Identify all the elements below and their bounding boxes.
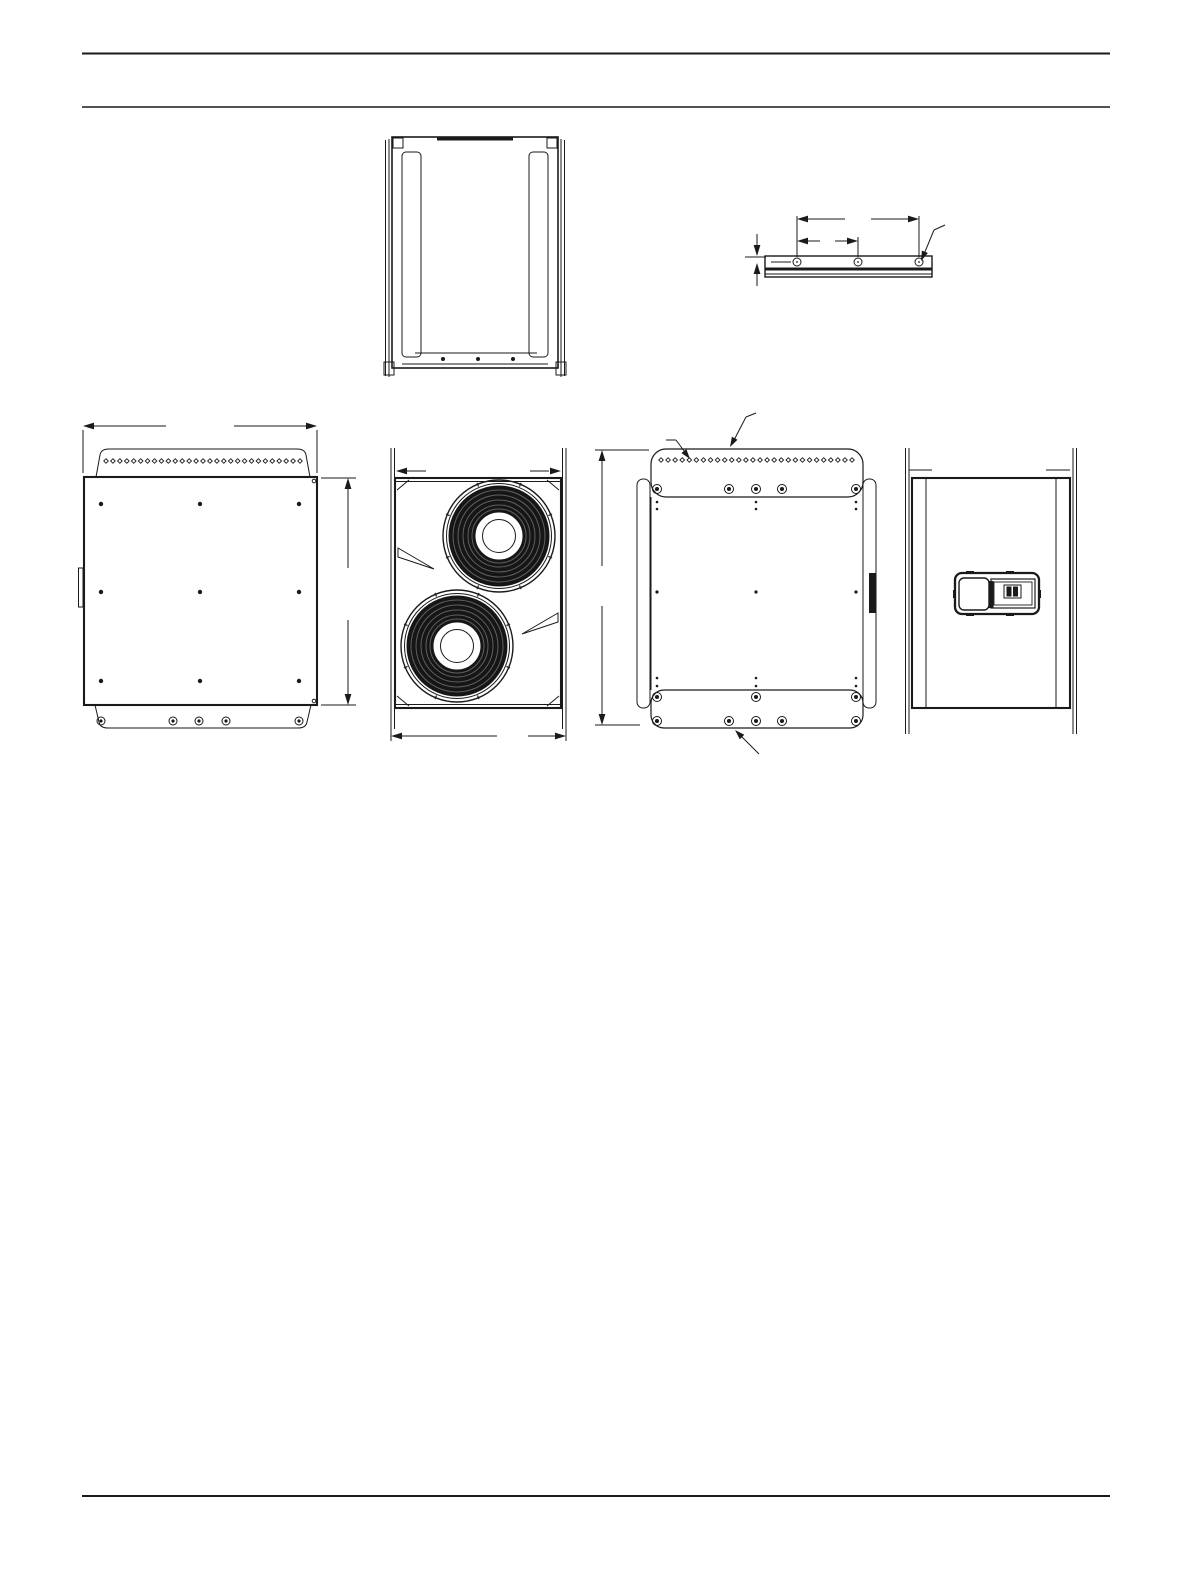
handle-tab: [1006, 613, 1014, 616]
dimension-depth: [83, 423, 317, 473]
bottom-strip-screws-row1: [653, 693, 861, 702]
arrowhead: [847, 238, 858, 245]
dimension-height: [595, 450, 649, 725]
handle-tab: [966, 613, 974, 616]
handle-tab: [1038, 590, 1041, 598]
corner-rivet-bottom: [312, 699, 316, 703]
arrowhead: [797, 238, 808, 245]
dimension-width-bottom: [391, 713, 566, 741]
dimension-rail-width-top: [396, 468, 561, 475]
corner-tab-left: [393, 138, 403, 148]
pilot-dots-upper: [656, 501, 858, 511]
recessed-handle: [953, 571, 1041, 616]
bolt-dot-grid: [99, 502, 301, 683]
handle-edge-profile: [869, 573, 876, 613]
arrowhead: [345, 478, 352, 489]
perforation-diamonds: [659, 458, 855, 463]
pilot-dots-lower: [656, 677, 858, 688]
leader-rail-hole: [921, 225, 945, 261]
view-front: [391, 448, 566, 741]
woofer-drivers: [401, 480, 555, 702]
side-wall-right: [529, 152, 548, 357]
arrowhead: [550, 468, 561, 475]
dimensional-drawing: [0, 0, 1191, 1587]
perforation-diamonds: [104, 459, 303, 464]
arrowhead: [908, 216, 919, 223]
arrowhead: [681, 449, 690, 459]
dimension-rail-thickness: [745, 234, 791, 286]
spec-sheet-page: [0, 0, 1191, 1587]
front-strip-screw-dots: [441, 357, 515, 361]
arrowhead: [396, 468, 407, 475]
view-rear: [595, 413, 876, 754]
handle-grip-bar: [989, 581, 994, 608]
header-rules: [82, 54, 1110, 108]
arrowhead: [83, 423, 94, 430]
arrowhead: [345, 694, 352, 705]
bottom-strip-screws-row2: [653, 717, 861, 726]
side-wall-left: [402, 152, 421, 357]
handle-tab: [1006, 571, 1014, 574]
arrowhead: [599, 450, 606, 461]
enclosure-outline: [392, 137, 558, 368]
top-strip-screws: [653, 485, 861, 494]
arrowhead: [555, 733, 566, 740]
leader-top-strip: [730, 413, 756, 447]
latch-block: [1013, 587, 1018, 597]
port-vane-lower: [522, 613, 558, 634]
arrowhead: [754, 263, 761, 274]
bottom-skid-strip: [95, 705, 311, 728]
arrowhead: [754, 245, 761, 256]
arrowhead: [797, 216, 808, 223]
corner-rivet-top: [312, 479, 316, 483]
handle-tab: [966, 571, 974, 574]
skid-screws: [97, 717, 303, 725]
rail-holes: [793, 258, 923, 266]
handle-edge-profile: [79, 568, 84, 607]
handle-cup: [959, 578, 989, 610]
dimension-hole-spacing-outer: [797, 216, 919, 257]
dimension-height: [321, 478, 356, 705]
arrowhead: [730, 437, 738, 447]
arrowhead: [599, 714, 606, 725]
leader-bottom-strip: [735, 730, 759, 754]
pilot-dots-mid: [655, 590, 857, 593]
view-rail-detail: [745, 216, 945, 286]
arrowhead: [306, 423, 317, 430]
view-side-left: [79, 423, 357, 728]
view-side-right: [906, 448, 1077, 734]
latch-block: [1007, 587, 1012, 597]
port-vane-upper: [398, 548, 434, 569]
arrowhead: [391, 733, 402, 740]
corner-tab-right: [547, 138, 557, 148]
view-top: [384, 137, 566, 377]
side-bracket-left: [637, 479, 650, 708]
handle-tab: [953, 590, 956, 598]
dimension-hole-spacing-inner: [797, 238, 858, 245]
